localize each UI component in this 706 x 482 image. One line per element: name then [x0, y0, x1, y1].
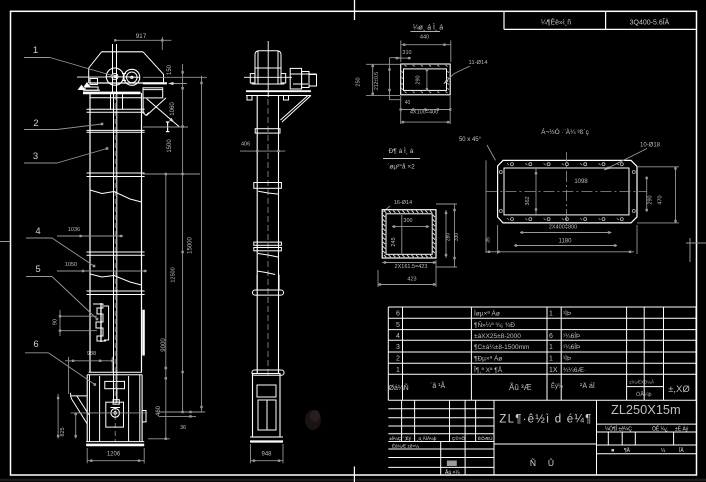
svg-text:35: 35	[486, 237, 492, 243]
svg-text:1: 1	[549, 344, 553, 351]
svg-text:40: 40	[405, 100, 411, 106]
svg-text:ÖÊ ¼¿: ÖÊ ¼¿	[652, 425, 668, 433]
svg-text:1206: 1206	[107, 452, 121, 458]
svg-text:310: 310	[402, 50, 411, 56]
svg-text:825: 825	[60, 427, 66, 436]
svg-text:3: 3	[396, 344, 400, 351]
svg-text:406: 406	[241, 142, 250, 148]
svg-text:11-Ø14: 11-Ø14	[469, 60, 489, 66]
svg-text:2: 2	[33, 118, 38, 129]
svg-text:1: 1	[396, 367, 400, 374]
svg-text:¸ü¸ÄÎÄ¼þ: ¸ü¸ÄÎÄ¼þ	[417, 435, 437, 442]
svg-text:470: 470	[658, 195, 664, 204]
svg-text:ÈÕÆÚ: ÈÕÆÚ	[478, 435, 493, 441]
svg-text:50 x 45°: 50 x 45°	[459, 137, 482, 143]
svg-text:423: 423	[407, 277, 416, 283]
svg-text:36: 36	[180, 425, 186, 431]
svg-text:12500: 12500	[171, 267, 177, 282]
svg-text:¹¼6ÍÞ: ¹¼6ÍÞ	[563, 342, 580, 351]
svg-text:212±0.5: 212±0.5	[374, 72, 380, 90]
svg-text:±áXX25±8-2000: ±áXX25±8-2000	[474, 333, 521, 340]
svg-text:¹ÌÞ: ¹ÌÞ	[563, 309, 571, 318]
svg-text:¼ø¸ á Ì¸ á: ¼ø¸ á Ì¸ á	[413, 23, 443, 32]
svg-text:ÎÅ: ÎÅ	[678, 447, 684, 454]
svg-text:362: 362	[525, 196, 531, 205]
svg-text:5: 5	[396, 322, 400, 329]
svg-text:6: 6	[549, 333, 553, 340]
svg-text:¼¶Èë»ì¸ñ: ¼¶Èë»ì¸ñ	[541, 18, 571, 27]
svg-text:±ê¼Ç: ±ê¼Ç	[389, 436, 402, 441]
svg-text:460: 460	[156, 405, 162, 416]
svg-text:300: 300	[403, 218, 412, 224]
svg-text:´øµ²°å ×2: ´øµ²°å ×2	[387, 163, 415, 171]
svg-text:Ð¶ á Ì¸ á: Ð¶ á Ì¸ á	[389, 146, 414, 155]
svg-text:´¦Êý: ´¦Êý	[403, 434, 412, 441]
svg-text:988: 988	[87, 351, 96, 357]
svg-text:6: 6	[396, 311, 400, 318]
svg-text:4: 4	[396, 333, 400, 340]
svg-text:¶Å: ¶Å	[624, 447, 631, 454]
svg-text:250: 250	[356, 77, 362, 86]
svg-text:440: 440	[420, 34, 429, 40]
svg-text:Ìøµ×ª Áø: Ìøµ×ª Áø	[474, 309, 500, 318]
svg-text:15000: 15000	[188, 236, 194, 253]
svg-text:Á¬½Ó ·¨À¼ ³ß´ç: Á¬½Ó ·¨À¼ ³ß´ç	[541, 127, 590, 136]
svg-text:´ã ¹Ã: ´ã ¹Ã	[430, 381, 446, 390]
svg-text:280: 280	[446, 233, 452, 242]
svg-text:1180: 1180	[559, 239, 573, 245]
svg-text:ZL¶·ê½ì d é¼¶: ZL¶·ê½ì d é¼¶	[499, 414, 592, 426]
svg-text:2X400=800: 2X400=800	[549, 225, 577, 231]
svg-text:150: 150	[167, 64, 173, 75]
svg-text:¶Ñ»¼ª ¾¡ ¾Ð: ¶Ñ»¼ª ¾¡ ¾Ð	[474, 320, 515, 329]
svg-text:1098: 1098	[574, 179, 588, 185]
svg-text:1: 1	[549, 356, 553, 363]
svg-text:1: 1	[33, 45, 38, 56]
svg-text:ZL250X15m: ZL250X15m	[611, 402, 681, 417]
svg-text:Ç©×Ö: Ç©×Ö	[452, 435, 465, 441]
svg-text:¶C±á¼±8-1500mm: ¶C±á¼±8-1500mm	[474, 344, 529, 351]
svg-text:ÓÃ¼þ: ÓÃ¼þ	[636, 391, 652, 398]
svg-text:Éè¼Æ ±ê×¼: Éè¼Æ ±ê×¼	[392, 443, 419, 449]
svg-text:290: 290	[648, 195, 654, 204]
svg-text:¼Ó¶Î ±ê¼Ç: ¼Ó¶Î ±ê¼Ç	[605, 426, 632, 433]
svg-text:290: 290	[416, 75, 422, 84]
svg-text:3Q400-5.6ÎÄ: 3Q400-5.6ÎÄ	[630, 18, 670, 27]
svg-text:1050: 1050	[65, 262, 77, 268]
svg-text:10-Ø18: 10-Ø18	[640, 143, 661, 149]
svg-text:9000: 9000	[161, 338, 167, 352]
svg-text:1: 1	[549, 311, 553, 318]
svg-text:4: 4	[35, 226, 40, 237]
svg-text:Î¶¸ª Xª ¶Å: Î¶¸ª Xª ¶Å	[473, 365, 503, 374]
svg-text:948: 948	[261, 452, 272, 458]
svg-text:¹¼6ÍÞ: ¹¼6ÍÞ	[563, 331, 580, 340]
svg-text:3: 3	[33, 151, 38, 162]
svg-text:90: 90	[53, 319, 59, 325]
svg-text:245: 245	[391, 237, 397, 246]
svg-text:Ñ: Ñ	[530, 458, 536, 468]
svg-text:¹ÌÞ: ¹ÌÞ	[563, 354, 571, 363]
svg-text:917: 917	[136, 33, 147, 40]
svg-text:2: 2	[396, 356, 400, 363]
svg-text:Åú ×¼: Åú ×¼	[445, 469, 460, 476]
svg-text:Ãû ³Æ: Ãû ³Æ	[509, 383, 532, 392]
svg-text:1500: 1500	[167, 139, 173, 153]
svg-text:Êý¼: Êý¼	[551, 382, 564, 390]
svg-text:5: 5	[35, 264, 40, 275]
svg-text:±È Àý: ±È Àý	[675, 426, 689, 433]
svg-text:1060: 1060	[170, 102, 176, 116]
svg-text:±Ì¼ÆXÐ¼Å: ±Ì¼ÆXÐ¼Å	[629, 379, 654, 385]
svg-text:¶Ðµ×ª Áø: ¶Ðµ×ª Áø	[474, 354, 502, 363]
svg-text:Øá¼Ñ: Øá¼Ñ	[389, 383, 409, 392]
svg-text:²Ä áÏ: ²Ä áÏ	[580, 382, 595, 390]
svg-text:2X161.5=423: 2X161.5=423	[395, 264, 428, 270]
svg-text:330: 330	[454, 233, 460, 242]
svg-text:¾¼6Æ·: ¾¼6Æ·	[563, 367, 586, 374]
svg-text:±,XØ: ±,XØ	[668, 384, 690, 395]
svg-text:1036: 1036	[68, 227, 80, 233]
svg-text:Û: Û	[548, 458, 554, 468]
svg-text:1X: 1X	[549, 367, 558, 374]
svg-text:6: 6	[33, 339, 38, 350]
svg-text:16-Ø14: 16-Ø14	[394, 200, 412, 206]
